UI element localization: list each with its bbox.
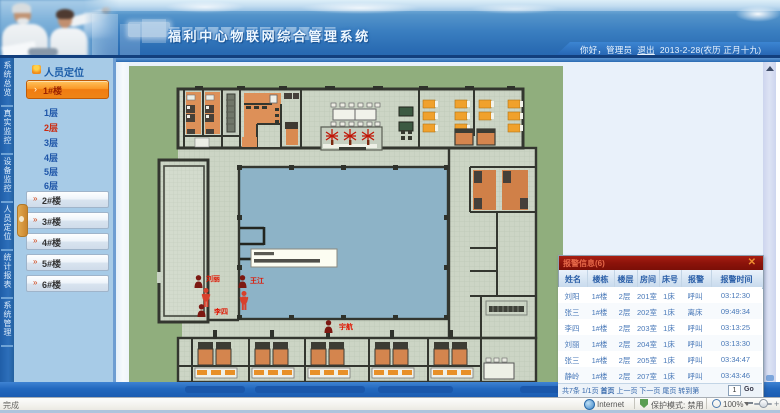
svg-text:王江: 王江 bbox=[250, 276, 264, 285]
svg-text:宇航: 宇航 bbox=[339, 322, 353, 331]
svg-text:刘丽: 刘丽 bbox=[206, 274, 220, 283]
svg-text:李四: 李四 bbox=[213, 307, 228, 316]
